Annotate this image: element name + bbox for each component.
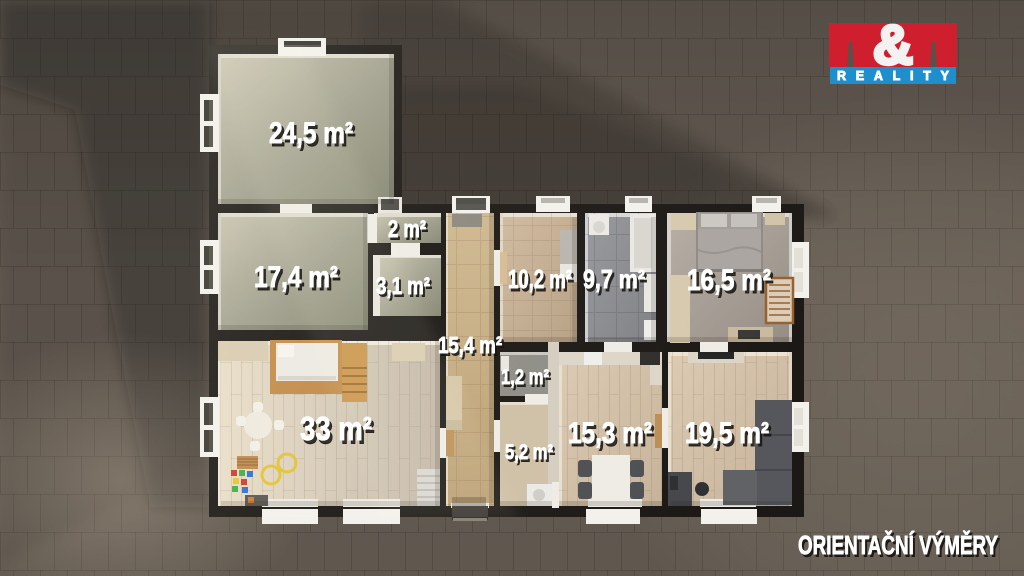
svg-text:3,1 m²: 3,1 m² (376, 273, 430, 300)
svg-text:33 m²: 33 m² (300, 410, 372, 447)
svg-text:1,2 m²: 1,2 m² (501, 366, 549, 389)
svg-text:24,5 m²: 24,5 m² (269, 117, 353, 150)
svg-text:&: & (873, 13, 913, 76)
svg-text:10,2 m²: 10,2 m² (508, 264, 572, 294)
svg-text:5,2 m²: 5,2 m² (505, 441, 553, 464)
svg-text:16,5 m²: 16,5 m² (687, 264, 771, 297)
svg-text:ORIENTAČNÍ VÝMĚRY: ORIENTAČNÍ VÝMĚRY (798, 530, 998, 560)
svg-text:15,4 m²: 15,4 m² (438, 332, 502, 358)
svg-text:9,7 m²: 9,7 m² (583, 264, 645, 294)
svg-text:15,3 m²: 15,3 m² (568, 417, 652, 450)
svg-text:2 m²: 2 m² (388, 216, 426, 243)
svg-text:19,5 m²: 19,5 m² (685, 417, 769, 450)
svg-text:17,4 m²: 17,4 m² (254, 261, 338, 294)
